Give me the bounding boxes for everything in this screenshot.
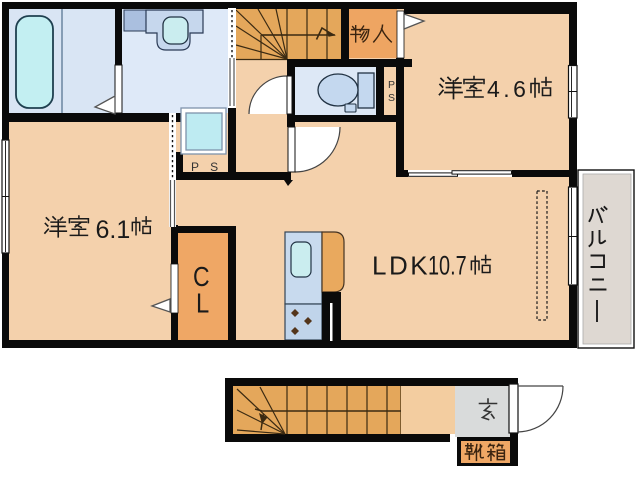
svg-text:LDK: LDK (372, 251, 430, 281)
svg-text:4.6: 4.6 (487, 76, 529, 102)
svg-text:P: P (388, 79, 395, 91)
svg-text:6.1: 6.1 (96, 216, 131, 244)
svg-text:10.7: 10.7 (428, 251, 467, 280)
svg-text:S: S (388, 92, 395, 104)
svg-text:P S: P S (191, 160, 222, 174)
svg-text:L: L (196, 287, 209, 319)
